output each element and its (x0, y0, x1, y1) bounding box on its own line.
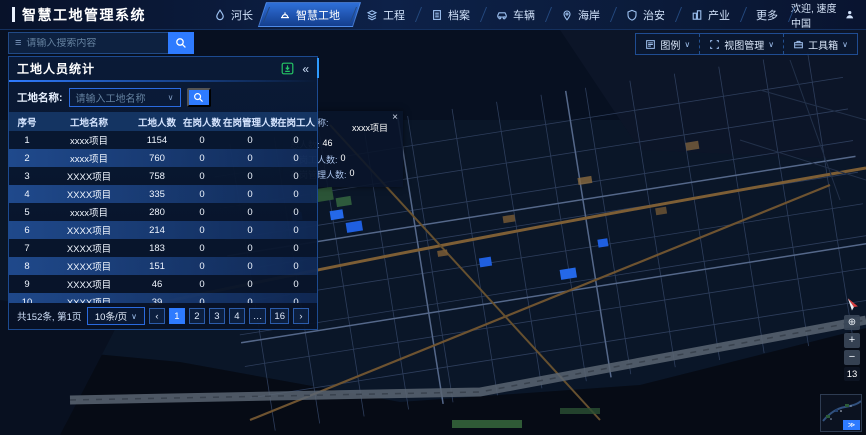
next-page-button[interactable]: › (293, 308, 309, 324)
car-icon (496, 9, 508, 21)
header-total: 工地人数 (133, 115, 181, 129)
page-button-2[interactable]: 2 (189, 308, 205, 324)
search-button[interactable] (168, 32, 194, 54)
cell-total: 758 (133, 171, 181, 182)
cell-total: 1154 (133, 135, 181, 146)
cell-onduty: 0 (181, 207, 223, 218)
cell-onduty: 0 (181, 279, 223, 290)
cell-mgmt: 0 (223, 207, 277, 218)
cell-index: 4 (9, 189, 45, 200)
prev-page-button[interactable]: ‹ (149, 308, 165, 324)
popup-workers-value: 0 (341, 153, 346, 166)
cell-onduty: 0 (181, 243, 223, 254)
legend-icon (645, 39, 656, 50)
view-frame-icon (709, 39, 720, 50)
header-mgmt: 在岗管理人数 (223, 115, 277, 129)
table-header-row: 序号 工地名称 工地人数 在岗人数 在岗管理人数 在岗工人数 (9, 112, 317, 131)
nav-item-smart-site[interactable]: 智慧工地 (266, 0, 353, 29)
legend-button[interactable]: 图例 ∨ (636, 34, 699, 54)
table-row[interactable]: 7 XXXX项目 183 0 0 0 (9, 239, 317, 257)
top-navbar: 智慧工地管理系统 河长 智慧工地 工程 档案 车辆 海岸 治安 (0, 0, 866, 30)
nav-label: 海岸 (578, 7, 600, 23)
cell-site-name: xxxx项目 (45, 205, 133, 219)
table-row[interactable]: 5 xxxx项目 280 0 0 0 (9, 203, 317, 221)
nav-label: 工程 (383, 7, 405, 23)
table-row[interactable]: 6 XXXX项目 214 0 0 0 (9, 221, 317, 239)
cell-index: 6 (9, 225, 45, 236)
panel-header: 工地人员统计 « (9, 57, 317, 80)
nav-item-river-chief[interactable]: 河长 (201, 0, 266, 29)
search-input[interactable] (26, 38, 162, 49)
table-row[interactable]: 8 XXXX项目 151 0 0 0 (9, 257, 317, 275)
search-field: ≡ (8, 32, 168, 54)
zoom-level-indicator: 13 (844, 367, 860, 381)
site-name-filter: 工地名称: 请输入工地名称 ∨ (9, 85, 317, 112)
cell-mgmt: 0 (223, 171, 277, 182)
nav-label: 车辆 (513, 7, 535, 23)
cell-index: 1 (9, 135, 45, 146)
cell-total: 151 (133, 261, 181, 272)
cell-workers: 0 (277, 135, 315, 146)
minimap-expand-button[interactable]: ≫ (843, 420, 860, 430)
nav-item-engineering[interactable]: 工程 (353, 0, 418, 29)
water-drop-icon (214, 9, 226, 21)
cell-workers: 0 (277, 153, 315, 164)
close-icon[interactable]: × (392, 113, 398, 123)
cell-total: 760 (133, 153, 181, 164)
pagination-bar: 共152条, 第1页 10条/页 ∨ ‹ 1 2 3 4 … 16 › (9, 303, 317, 329)
header-site-name: 工地名称 (45, 115, 133, 129)
toolbox-button[interactable]: 工具箱 ∨ (783, 34, 857, 54)
building-icon (691, 9, 703, 21)
pagination-summary: 共152条, 第1页 (17, 309, 81, 323)
header-onduty: 在岗人数 (181, 115, 223, 129)
cell-site-name: XXXX项目 (45, 241, 133, 255)
cell-index: 8 (9, 261, 45, 272)
header-workers: 在岗工人数 (277, 115, 315, 129)
list-icon[interactable]: ≡ (15, 38, 21, 49)
chevron-down-icon: ∨ (684, 40, 690, 49)
table-row[interactable]: 9 XXXX项目 46 0 0 0 (9, 275, 317, 293)
brand-accent-bar (12, 7, 15, 22)
cell-onduty: 0 (181, 135, 223, 146)
site-name-select[interactable]: 请输入工地名称 ∨ (69, 88, 181, 107)
zoom-in-button[interactable]: + (844, 333, 860, 348)
chevron-down-icon: ∨ (842, 40, 848, 49)
magnifier-icon (175, 37, 187, 49)
table-row[interactable]: 10 XXXX项目 39 0 0 0 (9, 293, 317, 303)
nav-item-vehicles[interactable]: 车辆 (483, 0, 548, 29)
page-size-select[interactable]: 10条/页 ∨ (87, 307, 145, 325)
page-button-1[interactable]: 1 (169, 308, 185, 324)
cell-index: 7 (9, 243, 45, 254)
cell-onduty: 0 (181, 153, 223, 164)
page-button-3[interactable]: 3 (209, 308, 225, 324)
panel-title-underline (9, 80, 317, 82)
cell-total: 183 (133, 243, 181, 254)
header-index: 序号 (9, 115, 45, 129)
nav-label: 河长 (231, 7, 253, 23)
cell-mgmt: 0 (223, 153, 277, 164)
hard-hat-icon (279, 9, 291, 21)
collapse-panel-icon[interactable]: « (302, 63, 309, 75)
page-button-4[interactable]: 4 (229, 308, 245, 324)
cell-index: 5 (9, 207, 45, 218)
cell-total: 335 (133, 189, 181, 200)
minimap[interactable]: ≫ (820, 394, 862, 432)
view-manage-label: 视图管理 (724, 37, 764, 52)
cell-mgmt: 0 (223, 243, 277, 254)
popup-total-value: 46 (323, 138, 333, 151)
cell-workers: 0 (277, 261, 315, 272)
cell-site-name: XXXX项目 (45, 295, 133, 303)
nav-label: 更多 (756, 7, 778, 23)
cell-total: 280 (133, 207, 181, 218)
cell-onduty: 0 (181, 171, 223, 182)
cell-workers: 0 (277, 207, 315, 218)
toolbox-icon (793, 39, 804, 50)
filter-search-button[interactable] (187, 88, 211, 107)
cell-total: 46 (133, 279, 181, 290)
zoom-out-button[interactable]: − (844, 350, 860, 365)
map-pin-icon (561, 9, 573, 21)
cell-onduty: 0 (181, 189, 223, 200)
cell-site-name: xxxx项目 (45, 133, 133, 147)
nav-label: 档案 (448, 7, 470, 23)
download-icon[interactable] (281, 62, 294, 75)
cell-onduty: 0 (181, 261, 223, 272)
panel-title: 工地人员统计 (17, 60, 95, 77)
panel-accent (317, 58, 319, 78)
cell-site-name: XXXX项目 (45, 169, 133, 183)
global-search-bar: ≡ (8, 32, 194, 54)
view-manage-button[interactable]: 视图管理 ∨ (699, 34, 783, 54)
map-toolbar: 图例 ∨ 视图管理 ∨ 工具箱 ∨ (635, 33, 858, 55)
table-row[interactable]: 4 XXXX项目 335 0 0 0 (9, 185, 317, 203)
compass-icon[interactable] (844, 296, 859, 311)
app-title: 智慧工地管理系统 (22, 5, 146, 25)
table-body: 1 xxxx项目 1154 0 0 0 2 xxxx项目 760 0 0 0 (9, 131, 317, 303)
cell-index: 3 (9, 171, 45, 182)
cell-mgmt: 0 (223, 279, 277, 290)
cell-workers: 0 (277, 189, 315, 200)
legend-label: 图例 (660, 37, 680, 52)
cell-workers: 0 (277, 171, 315, 182)
cell-workers: 0 (277, 243, 315, 254)
nav-item-archives[interactable]: 档案 (418, 0, 483, 29)
popup-mgmt-value: 0 (350, 168, 355, 181)
cell-index: 9 (9, 279, 45, 290)
cell-site-name: XXXX项目 (45, 259, 133, 273)
nav-item-security[interactable]: 治安 (613, 0, 678, 29)
cell-mgmt: 0 (223, 189, 277, 200)
welcome-text: 欢迎, 速度中国 (791, 0, 839, 30)
chevron-down-icon: ∨ (168, 93, 174, 102)
document-icon (431, 9, 443, 21)
nav-label: 产业 (708, 7, 730, 23)
shield-icon (626, 9, 638, 21)
nav-item-more[interactable]: 更多 (743, 0, 791, 29)
cell-mgmt: 0 (223, 225, 277, 236)
toolbox-label: 工具箱 (808, 37, 838, 52)
nav-label: 智慧工地 (296, 7, 340, 23)
nav-label: 治安 (643, 7, 665, 23)
cell-site-name: XXXX项目 (45, 187, 133, 201)
cell-site-name: xxxx项目 (45, 151, 133, 165)
user-icon[interactable] (845, 8, 854, 21)
cell-workers: 0 (277, 225, 315, 236)
panel-header-icons: « (281, 62, 309, 75)
table-row[interactable]: 3 XXXX项目 758 0 0 0 (9, 167, 317, 185)
cell-onduty: 0 (181, 225, 223, 236)
chevron-down-icon: ∨ (768, 40, 774, 49)
chevron-down-icon: ∨ (131, 312, 137, 321)
cell-site-name: XXXX项目 (45, 223, 133, 237)
welcome-area: 欢迎, 速度中国 (791, 0, 866, 30)
cell-index: 2 (9, 153, 45, 164)
site-personnel-panel: 工地人员统计 « 工地名称: 请输入工地名称 ∨ 序号 工地名称 工地人数 在岗… (8, 56, 318, 330)
page-ellipsis[interactable]: … (249, 308, 267, 324)
table-row[interactable]: 2 xxxx项目 760 0 0 0 (9, 149, 317, 167)
select-placeholder: 请输入工地名称 (76, 90, 146, 105)
magnifier-icon (193, 92, 204, 103)
cell-mgmt: 0 (223, 135, 277, 146)
nav-item-coast[interactable]: 海岸 (548, 0, 613, 29)
layers-icon (366, 9, 378, 21)
main-nav: 河长 智慧工地 工程 档案 车辆 海岸 治安 产业 (201, 0, 791, 29)
popup-name-value: xxxx项目 (352, 121, 388, 134)
filter-label: 工地名称: (17, 90, 63, 105)
page-size-value: 10条/页 (95, 309, 127, 323)
cell-total: 214 (133, 225, 181, 236)
personnel-table: 序号 工地名称 工地人数 在岗人数 在岗管理人数 在岗工人数 1 xxxx项目 … (9, 112, 317, 303)
locate-button[interactable]: ⊕ (844, 315, 860, 330)
cell-mgmt: 0 (223, 261, 277, 272)
cell-site-name: XXXX项目 (45, 277, 133, 291)
table-row[interactable]: 1 xxxx项目 1154 0 0 0 (9, 131, 317, 149)
nav-item-industry[interactable]: 产业 (678, 0, 743, 29)
brand: 智慧工地管理系统 (0, 5, 146, 25)
page-button-16[interactable]: 16 (270, 308, 289, 324)
cell-workers: 0 (277, 279, 315, 290)
